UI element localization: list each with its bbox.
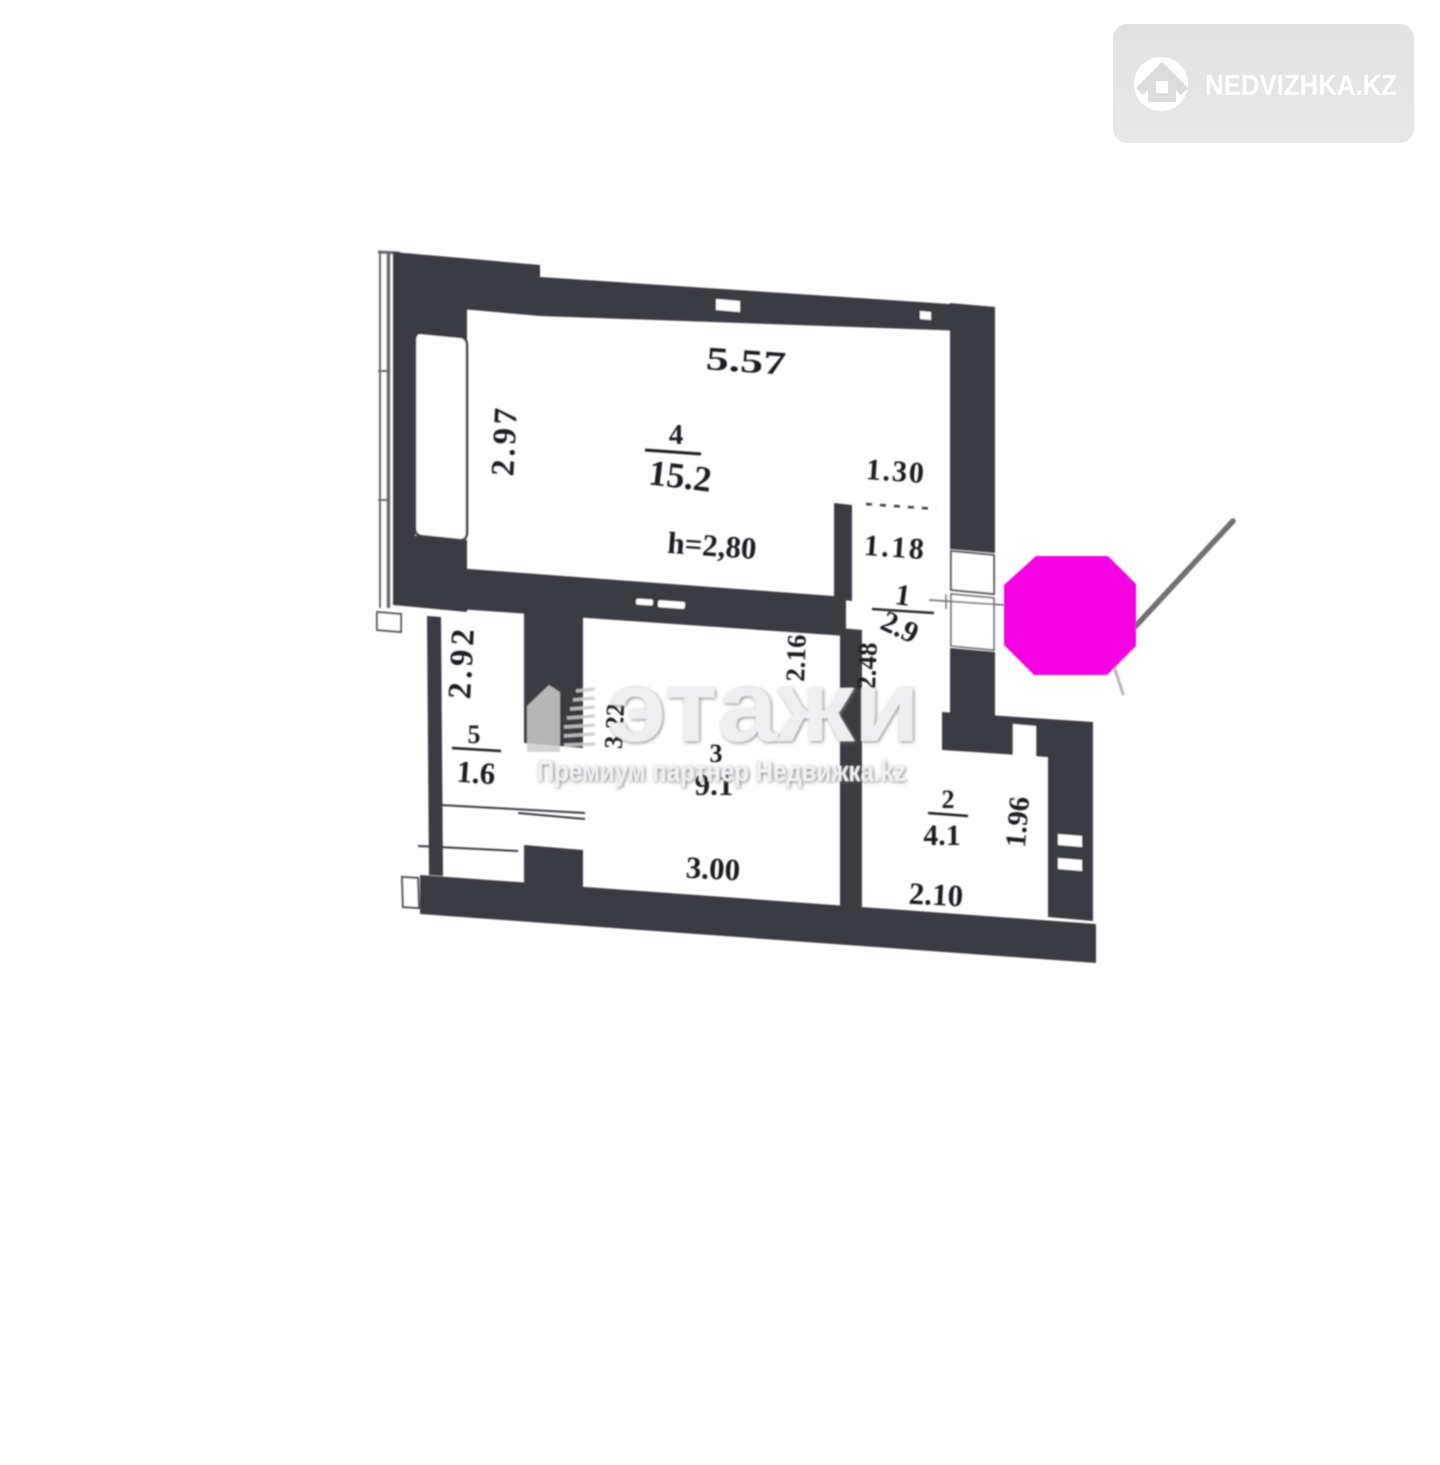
svg-text:5.57: 5.57 (705, 341, 787, 382)
svg-text:5: 5 (468, 720, 481, 749)
svg-text:1.30: 1.30 (865, 453, 925, 490)
svg-text:этажи: этажи (607, 651, 920, 763)
svg-text:1.96: 1.96 (1000, 795, 1036, 848)
svg-text:4.1: 4.1 (923, 819, 961, 852)
svg-text:2: 2 (942, 785, 955, 814)
svg-text:3.00: 3.00 (685, 850, 741, 888)
svg-text:1.18: 1.18 (863, 529, 925, 566)
svg-text:h=2,80: h=2,80 (666, 525, 757, 566)
svg-text:2.97: 2.97 (485, 407, 525, 477)
svg-text:1.6: 1.6 (455, 754, 496, 792)
svg-text:4: 4 (669, 419, 684, 451)
svg-text:2.10: 2.10 (908, 876, 964, 914)
svg-text:NEDVIZHKA.KZ: NEDVIZHKA.KZ (1205, 70, 1397, 102)
svg-text:2.92: 2.92 (442, 628, 482, 700)
svg-text:Премиум партнер Недвижка.kz: Премиум партнер Недвижка.kz (537, 756, 906, 788)
svg-text:15.2: 15.2 (647, 452, 714, 499)
